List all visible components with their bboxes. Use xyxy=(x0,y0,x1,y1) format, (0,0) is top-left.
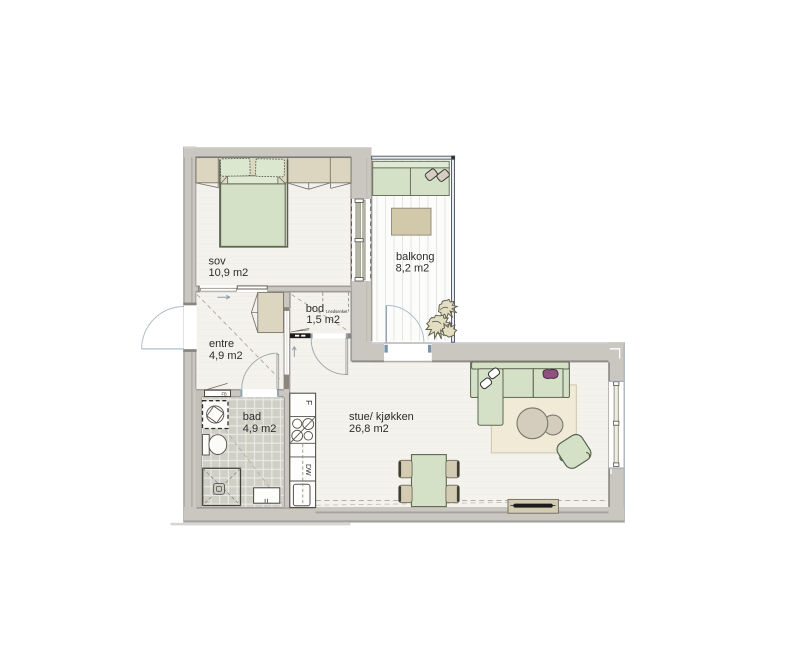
svg-text:DW: DW xyxy=(304,464,311,476)
svg-text:F: F xyxy=(304,400,314,405)
svg-text:FB: FB xyxy=(222,391,228,396)
svg-text:balkong8,2 m2: balkong8,2 m2 xyxy=(396,251,435,274)
